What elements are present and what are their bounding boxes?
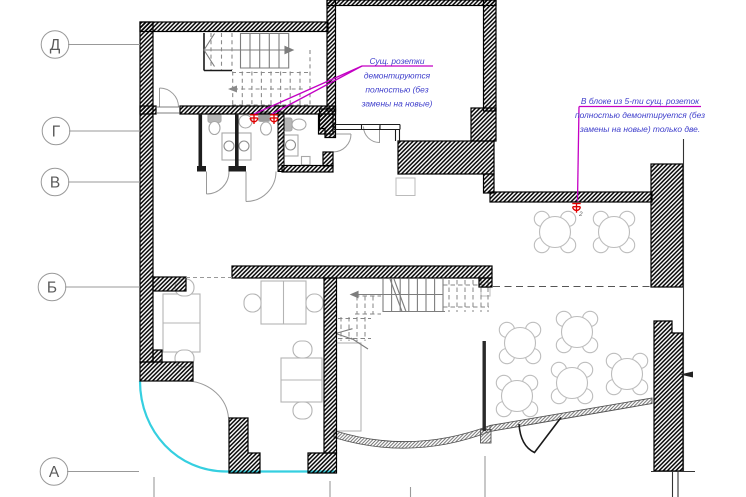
- svg-text:замены на новые) только две.: замены на новые) только две.: [579, 124, 700, 134]
- svg-text:Сущ. розетки: Сущ. розетки: [369, 56, 424, 66]
- svg-text:Г: Г: [52, 124, 61, 141]
- svg-text:В блоке из 5-ти сущ. розеток: В блоке из 5-ти сущ. розеток: [581, 96, 700, 106]
- svg-text:Д: Д: [50, 37, 61, 54]
- svg-text:В: В: [50, 175, 60, 192]
- svg-text:А: А: [49, 464, 60, 481]
- svg-text:полностью демонтируется (без: полностью демонтируется (без: [575, 110, 705, 120]
- svg-text:2: 2: [578, 211, 583, 218]
- svg-text:замены на новые): замены на новые): [361, 99, 433, 109]
- svg-text:полностью (без: полностью (без: [365, 85, 428, 95]
- svg-text:демонтируются: демонтируются: [364, 71, 431, 81]
- svg-text:Б: Б: [47, 280, 57, 297]
